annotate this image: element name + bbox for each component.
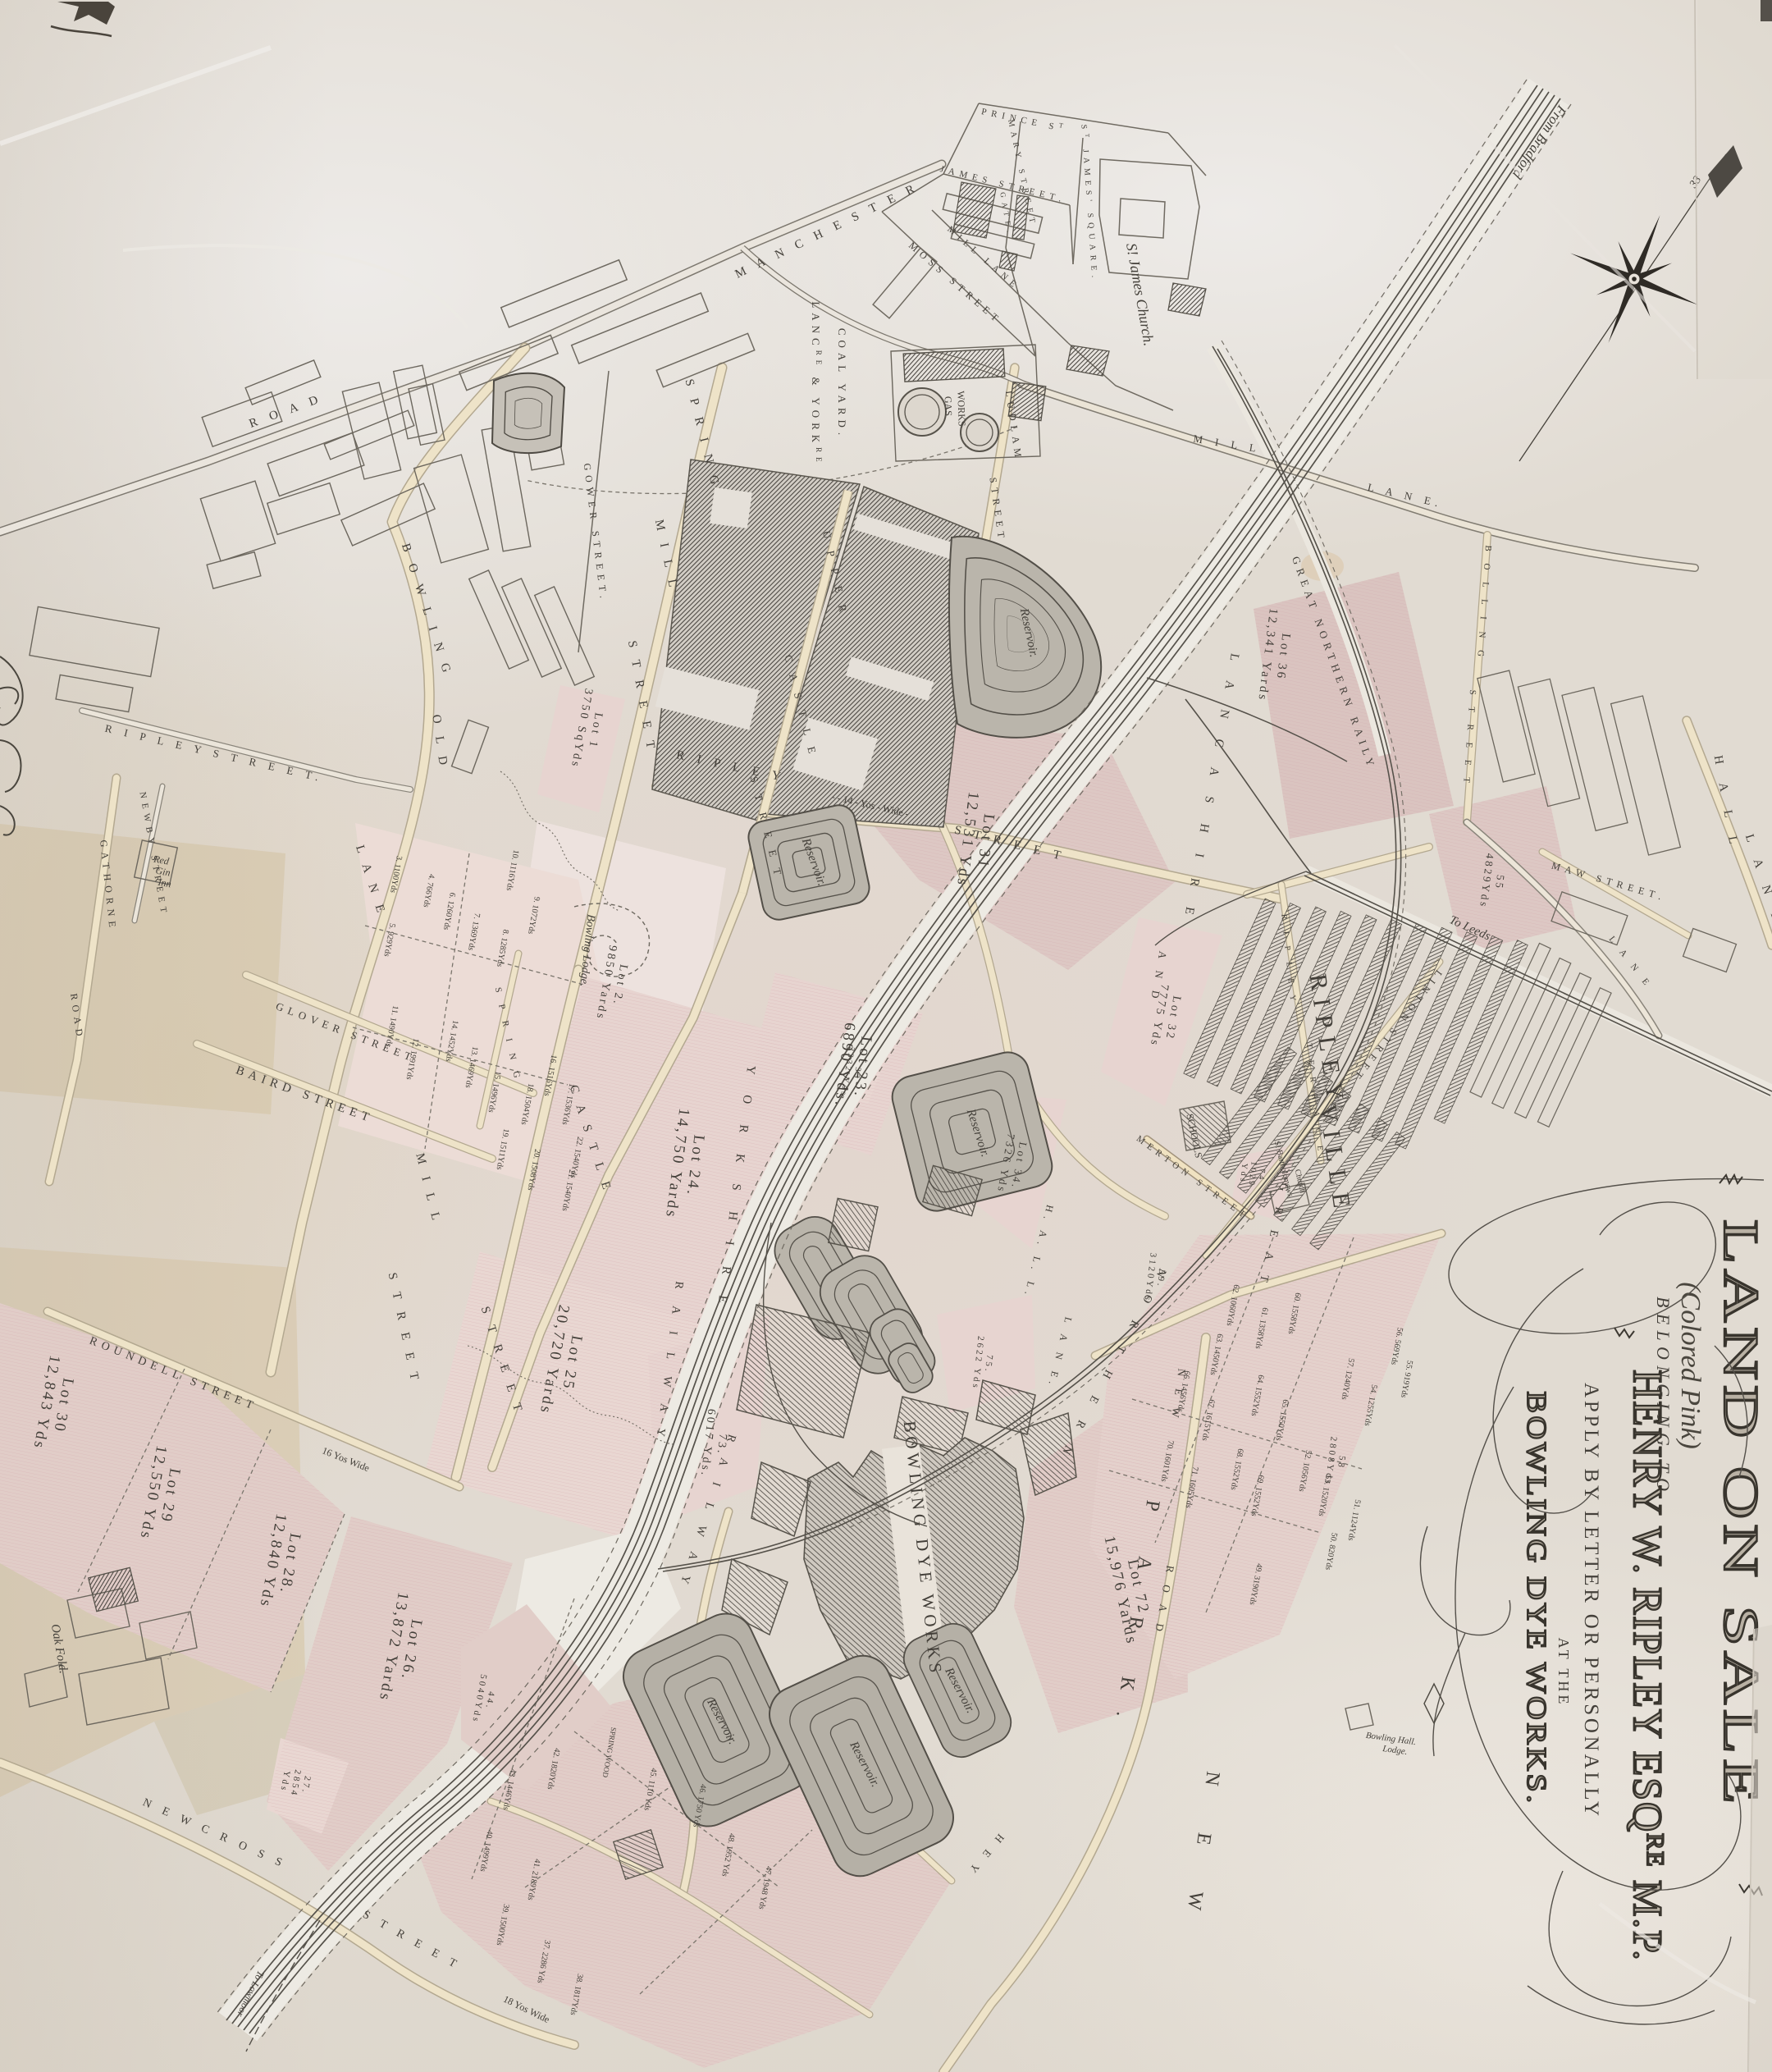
svg-text:GAS: GAS xyxy=(943,396,955,416)
svg-text:Inn: Inn xyxy=(157,876,172,890)
svg-text:APPLY BY LETTER OR PERSONA: APPLY BY LETTER OR PERSONALLY xyxy=(1580,1383,1602,1818)
svg-text:(Colored Pink): (Colored Pink) xyxy=(1675,1282,1706,1449)
svg-text:AT THE: AT THE xyxy=(1555,1638,1572,1708)
svg-text:WORKS: WORKS xyxy=(955,391,968,427)
svg-text:HENRY W. RIPLEY ESQRE M.P.: HENRY W. RIPLEY ESQRE M.P. xyxy=(1625,1370,1671,1961)
svg-text:LANCRE & YORKRE: LANCRE & YORKRE xyxy=(810,301,823,466)
svg-text:COAL YARD.: COAL YARD. xyxy=(836,328,848,440)
svg-text:BOWLING DYE WORKS.: BOWLING DYE WORKS. xyxy=(1521,1392,1551,1806)
